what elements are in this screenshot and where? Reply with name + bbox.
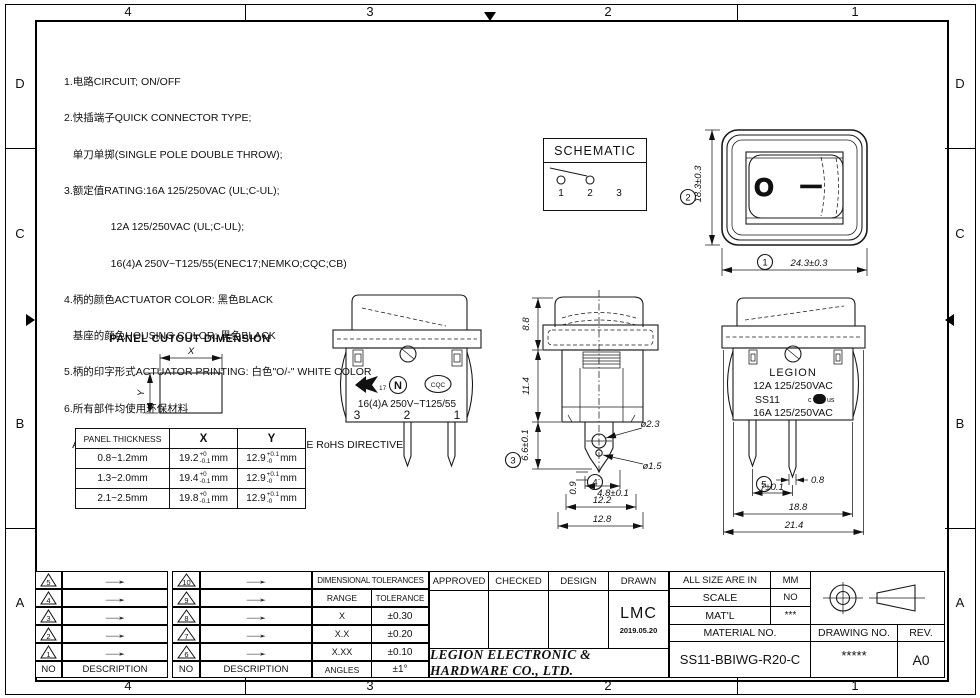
revision-number: 8 bbox=[184, 614, 188, 623]
revision-number: 7 bbox=[184, 632, 188, 641]
bottom-dimensions: 0.9 4 4.8±0.1 12.2 12.8 bbox=[558, 470, 643, 529]
dim-width-2: 12.8 bbox=[593, 514, 612, 525]
zone-top-3: 3 bbox=[361, 5, 379, 19]
checked-signature-cell bbox=[488, 590, 549, 649]
table-header-row: PANEL THICKNESS X Y bbox=[76, 429, 306, 449]
y-cell: 12.9+0.1-0mm bbox=[238, 449, 306, 469]
x-value: 19.2 bbox=[179, 453, 198, 464]
zone-left-b: B bbox=[11, 417, 29, 431]
projection-symbol-cell bbox=[810, 571, 945, 625]
schematic-box: SCHEMATIC 1 2 3 bbox=[543, 138, 647, 211]
terminal-2-label: 2 bbox=[587, 188, 593, 199]
drawn-date: 2019.05.20 bbox=[620, 626, 658, 635]
tolerance-value: ±1° bbox=[371, 661, 429, 678]
table-row: 1.3~2.0mm 19.4+0-0.1mm 12.9+0.1-0mm bbox=[76, 469, 306, 489]
rocker bbox=[737, 298, 855, 326]
thickness-cell: 0.8~1.2mm bbox=[76, 449, 170, 469]
zone-top-1: 1 bbox=[846, 5, 864, 19]
revision-triangle-icon: 7 bbox=[177, 627, 196, 641]
zone-right-c: C bbox=[951, 227, 969, 241]
dim-flange-width: 21.4 bbox=[784, 520, 804, 531]
panel-cutout-title: PANEL CUTOUT DIMENSION bbox=[95, 333, 285, 345]
tolerance-range: X bbox=[312, 607, 372, 625]
revision-arrow: → bbox=[99, 627, 130, 641]
y-tol-lower: -0 bbox=[267, 499, 279, 505]
zone-divider bbox=[245, 678, 246, 694]
revision-desc-cell: → bbox=[62, 607, 168, 625]
zone-right-d: D bbox=[951, 77, 969, 91]
dim-tip-dia: ø1.5 bbox=[642, 461, 662, 472]
zone-bottom-2: 2 bbox=[599, 679, 617, 693]
tolerance-value: ±0.10 bbox=[371, 643, 429, 661]
revision-no-cell: 8 bbox=[172, 607, 200, 625]
cutout-x-label: X bbox=[187, 346, 195, 357]
mounting-flange bbox=[333, 330, 481, 348]
matl-value: *** bbox=[770, 606, 811, 625]
tolerance-title: DIMENSIONAL TOLERANCES bbox=[312, 571, 429, 589]
terminal-pins bbox=[749, 420, 796, 477]
revision-no-header: NO bbox=[172, 661, 200, 678]
y-tol-lower: -0 bbox=[267, 459, 279, 465]
revision-arrow: → bbox=[99, 573, 130, 587]
revision-arrow: → bbox=[240, 573, 271, 587]
balloon-3: 3 bbox=[510, 456, 515, 467]
revision-triangle-icon: 6 bbox=[177, 645, 196, 659]
dim-terminal-length: 6.6±0.1 bbox=[520, 429, 531, 461]
revision-no-cell: 1 bbox=[35, 643, 62, 661]
revision-number: 2 bbox=[46, 632, 50, 641]
col-header-x: X bbox=[170, 429, 238, 449]
revision-triangle-icon: 2 bbox=[40, 627, 57, 641]
zone-left-a: A bbox=[11, 596, 29, 610]
zone-left-d: D bbox=[11, 77, 29, 91]
revision-number: 3 bbox=[46, 614, 50, 623]
balloon-2: 2 bbox=[685, 193, 690, 204]
tolerance-tol-header: TOLERANCE bbox=[371, 589, 429, 607]
revision-desc-cell: → bbox=[200, 625, 312, 643]
revision-number: 1 bbox=[46, 650, 50, 659]
dim-width-1: 12.2 bbox=[593, 495, 612, 506]
balloon-4: 4 bbox=[592, 478, 597, 489]
certification-marks: 17 N CQC bbox=[355, 376, 451, 394]
revision-triangle-icon: 9 bbox=[177, 591, 196, 605]
drawn-signature-cell: LMC 2019.05.20 bbox=[608, 590, 669, 649]
revision-arrow: → bbox=[240, 609, 271, 623]
scale-value: NO bbox=[770, 588, 811, 607]
brand-text: LEGION bbox=[769, 367, 817, 379]
all-size-value: MM bbox=[770, 571, 811, 589]
switch-body bbox=[562, 350, 643, 422]
y-value: 12.9 bbox=[246, 473, 265, 484]
thickness-cell: 2.1~2.5mm bbox=[76, 489, 170, 509]
revision-no-cell: 4 bbox=[35, 589, 62, 607]
y-value: 12.9 bbox=[246, 453, 265, 464]
dim-thickness: 0.9 bbox=[568, 481, 579, 495]
revision-desc-cell: → bbox=[200, 571, 312, 589]
revision-desc-cell: → bbox=[62, 589, 168, 607]
switch-front-marks-view: 17 N CQC 16(4)A 250V~T125/55 3 2 1 bbox=[328, 288, 493, 483]
revision-arrow: → bbox=[99, 591, 130, 605]
y-value: 12.9 bbox=[246, 493, 265, 504]
revision-triangle-icon: 1 bbox=[40, 645, 57, 659]
unit-label: mm bbox=[280, 473, 297, 484]
mounting-flange bbox=[543, 325, 658, 350]
x-tol-lower: -0.1 bbox=[199, 479, 210, 485]
actuator-front-view: O — 18.3±0.3 2 1 24.3±0.3 bbox=[675, 120, 880, 280]
switch-side-view: 8.8 11.4 6.6±0.1 3 ø2.3 ø1.5 0.9 4 4.8±0… bbox=[498, 288, 678, 540]
revision-arrow: → bbox=[99, 609, 130, 623]
terminal-1-label: 1 bbox=[454, 408, 461, 422]
zone-right-a: A bbox=[951, 596, 969, 610]
body-markings: LEGION 12A 125/250VAC SS11 c UL us 16A 1… bbox=[753, 367, 835, 419]
note-line: 1.电路CIRCUIT; ON/OFF bbox=[64, 76, 403, 88]
revision-desc-cell: → bbox=[200, 607, 312, 625]
rocker bbox=[352, 295, 467, 330]
revision-triangle-icon: 4 bbox=[40, 591, 57, 605]
zone-divider bbox=[737, 678, 738, 694]
tolerance-value: ±0.30 bbox=[371, 607, 429, 625]
zone-right-b: B bbox=[951, 417, 969, 431]
dim-hole-dia: ø2.3 bbox=[640, 419, 660, 430]
revision-number: 10 bbox=[182, 578, 190, 587]
col-header-thickness: PANEL THICKNESS bbox=[76, 429, 170, 449]
schematic-title: SCHEMATIC bbox=[544, 139, 646, 163]
panel-cutout-diagram: X Y bbox=[135, 345, 245, 420]
revision-no-cell: 6 bbox=[172, 643, 200, 661]
center-mark-left-icon bbox=[26, 314, 35, 326]
zone-divider bbox=[5, 148, 35, 149]
revision-number: 5 bbox=[46, 578, 50, 587]
revision-number: 4 bbox=[46, 596, 50, 605]
revision-desc-header: DESCRIPTION bbox=[62, 661, 168, 678]
unit-label: mm bbox=[211, 453, 228, 464]
revision-arrow: → bbox=[240, 627, 271, 641]
hole-dimensions: ø2.3 ø1.5 bbox=[603, 419, 662, 472]
mounting-flange bbox=[722, 326, 865, 348]
revision-no-cell: 3 bbox=[35, 607, 62, 625]
y-cell: 12.9+0.1-0mm bbox=[238, 489, 306, 509]
on-mark: — bbox=[801, 175, 821, 197]
dim-body-width: 18.8 bbox=[789, 502, 808, 513]
revision-triangle-icon: 8 bbox=[177, 609, 196, 623]
revision-number: 9 bbox=[184, 596, 188, 605]
thickness-cell: 1.3~2.0mm bbox=[76, 469, 170, 489]
center-mark-top-icon bbox=[484, 12, 496, 21]
note-line: 16(4)A 250V~T125/55(ENEC17;NEMKO;CQC;CB) bbox=[64, 258, 403, 270]
zone-top-2: 2 bbox=[599, 5, 617, 19]
terminal-pins bbox=[404, 422, 455, 466]
enec-mark-icon bbox=[355, 376, 378, 393]
tolerance-value: ±0.20 bbox=[371, 625, 429, 643]
third-angle-projection-icon bbox=[815, 575, 940, 621]
revision-triangle-icon: 10 bbox=[177, 573, 196, 587]
zone-divider bbox=[737, 4, 738, 20]
zone-top-4: 4 bbox=[119, 5, 137, 19]
drawing-no-value: ***** bbox=[810, 641, 898, 678]
revision-triangle-icon: 5 bbox=[40, 573, 57, 587]
cutout-y-label: Y bbox=[136, 389, 147, 396]
dim-body-height: 11.4 bbox=[521, 377, 532, 395]
revision-no-cell: 10 bbox=[172, 571, 200, 589]
scale-label: SCALE bbox=[669, 588, 771, 607]
dim-height-label: 18.3±0.3 bbox=[693, 165, 704, 203]
ul-c: c bbox=[808, 397, 812, 404]
revision-number: 6 bbox=[184, 650, 188, 659]
revision-desc-cell: → bbox=[200, 589, 312, 607]
table-row: 0.8~1.2mm 19.2+0-0.1mm 12.9+0.1-0mm bbox=[76, 449, 306, 469]
revision-no-cell: 5 bbox=[35, 571, 62, 589]
zone-left-c: C bbox=[11, 227, 29, 241]
balloon-1: 1 bbox=[762, 258, 767, 269]
switch-back-view: LEGION 12A 125/250VAC SS11 c UL us 16A 1… bbox=[708, 288, 888, 543]
x-tol-lower: -0.1 bbox=[199, 499, 210, 505]
tolerance-range-header: RANGE bbox=[312, 589, 372, 607]
revision-no-cell: 7 bbox=[172, 625, 200, 643]
terminal-2-label: 2 bbox=[404, 408, 411, 422]
drawing-no-label: DRAWING NO. bbox=[810, 624, 898, 642]
approved-signature-cell bbox=[429, 590, 489, 649]
revision-arrow: → bbox=[99, 645, 130, 659]
revision-desc-header: DESCRIPTION bbox=[200, 661, 312, 678]
company-name: LEGION ELECTRONIC & HARDWARE CO., LTD. bbox=[429, 648, 669, 678]
revision-desc-cell: → bbox=[200, 643, 312, 661]
dim-pin-pitch: 7±0.1 bbox=[760, 482, 784, 493]
left-dimensions: 8.8 11.4 6.6±0.1 3 bbox=[506, 298, 593, 469]
unit-label: mm bbox=[280, 493, 297, 504]
zone-bottom-4: 4 bbox=[119, 679, 137, 693]
note-line: 12A 125/250VAC (UL;C-UL); bbox=[64, 221, 403, 233]
ul-core: UL bbox=[816, 398, 824, 404]
tolerance-range: X.X bbox=[312, 625, 372, 643]
x-cell: 19.8+0-0.1mm bbox=[170, 489, 238, 509]
x-cell: 19.2+0-0.1mm bbox=[170, 449, 238, 469]
rating-line-2: 16A 125/250VAC bbox=[753, 407, 833, 419]
panel-cutout-table: PANEL THICKNESS X Y 0.8~1.2mm 19.2+0-0.1… bbox=[75, 428, 306, 509]
unit-label: mm bbox=[280, 453, 297, 464]
tolerance-range: X.XX bbox=[312, 643, 372, 661]
model-text: SS11 bbox=[755, 394, 780, 406]
ul-mark-icon: c UL us bbox=[808, 394, 835, 404]
x-value: 19.4 bbox=[179, 473, 198, 484]
matl-label: MAT'L bbox=[669, 606, 771, 625]
material-no-label: MATERIAL NO. bbox=[669, 624, 811, 642]
drawing-sheet: { "sheet": { "zones_h": ["4", "3", "2", … bbox=[0, 0, 980, 698]
revision-arrow: → bbox=[240, 645, 271, 659]
design-header: DESIGN bbox=[548, 571, 609, 591]
height-dimension: 18.3±0.3 2 bbox=[681, 130, 721, 245]
width-dimension: 1 24.3±0.3 bbox=[722, 248, 867, 276]
switch-bezel bbox=[722, 130, 867, 245]
zone-divider bbox=[945, 148, 975, 149]
tolerance-range: ANGLES bbox=[312, 661, 372, 678]
table-row: 2.1~2.5mm 19.8+0-0.1mm 12.9+0.1-0mm bbox=[76, 489, 306, 509]
terminal-1-label: 1 bbox=[558, 188, 564, 199]
y-tol-lower: -0 bbox=[267, 479, 279, 485]
terminal-3-label: 3 bbox=[354, 408, 361, 422]
all-size-label: ALL SIZE ARE IN bbox=[669, 571, 771, 589]
revision-no-cell: 9 bbox=[172, 589, 200, 607]
off-mark: O bbox=[754, 174, 773, 202]
note-line: 3.额定值RATING:16A 125/250VAC (UL;C-UL); bbox=[64, 185, 403, 197]
revision-desc-cell: → bbox=[62, 625, 168, 643]
revision-triangle-icon: 3 bbox=[40, 609, 57, 623]
zone-bottom-1: 1 bbox=[846, 679, 864, 693]
note-line: 2.快插端子QUICK CONNECTOR TYPE; bbox=[64, 112, 403, 124]
material-no-value: SS11-BBIWG-R20-C bbox=[669, 641, 811, 678]
checked-header: CHECKED bbox=[488, 571, 549, 591]
dim-rocker-height: 8.8 bbox=[521, 317, 532, 331]
rev-label: REV. bbox=[897, 624, 945, 642]
design-signature-cell bbox=[548, 590, 609, 649]
approved-header: APPROVED bbox=[429, 571, 489, 591]
drawn-by: LMC bbox=[620, 605, 657, 623]
zone-divider bbox=[5, 528, 35, 529]
schematic-symbol: 1 2 3 bbox=[544, 163, 643, 208]
dim-width-label: 24.3±0.3 bbox=[790, 258, 829, 269]
x-tol-lower: -0.1 bbox=[199, 459, 210, 465]
unit-label: mm bbox=[211, 493, 228, 504]
revision-no-header: NO bbox=[35, 661, 62, 678]
dim-pin-thickness: 0.8 bbox=[811, 475, 825, 486]
zone-divider bbox=[245, 4, 246, 20]
revision-desc-cell: → bbox=[62, 571, 168, 589]
enec-number: 17 bbox=[379, 385, 387, 392]
zone-divider bbox=[945, 528, 975, 529]
drawn-header: DRAWN bbox=[608, 571, 669, 591]
cqc-letters: CQC bbox=[431, 382, 446, 389]
revision-no-cell: 2 bbox=[35, 625, 62, 643]
x-cell: 19.4+0-0.1mm bbox=[170, 469, 238, 489]
x-value: 19.8 bbox=[179, 493, 198, 504]
ul-us: us bbox=[827, 397, 835, 404]
center-mark-right-icon bbox=[945, 314, 954, 326]
rev-value: A0 bbox=[897, 641, 945, 678]
terminal-3-label: 3 bbox=[616, 188, 622, 199]
zone-bottom-3: 3 bbox=[361, 679, 379, 693]
revision-arrow: → bbox=[240, 591, 271, 605]
y-cell: 12.9+0.1-0mm bbox=[238, 469, 306, 489]
note-line: 单刀单掷(SINGLE POLE DOUBLE THROW); bbox=[64, 149, 403, 161]
rating-line-1: 12A 125/250VAC bbox=[753, 380, 833, 392]
revision-desc-cell: → bbox=[62, 643, 168, 661]
col-header-y: Y bbox=[238, 429, 306, 449]
nemko-letter: N bbox=[394, 380, 402, 392]
unit-label: mm bbox=[211, 473, 228, 484]
